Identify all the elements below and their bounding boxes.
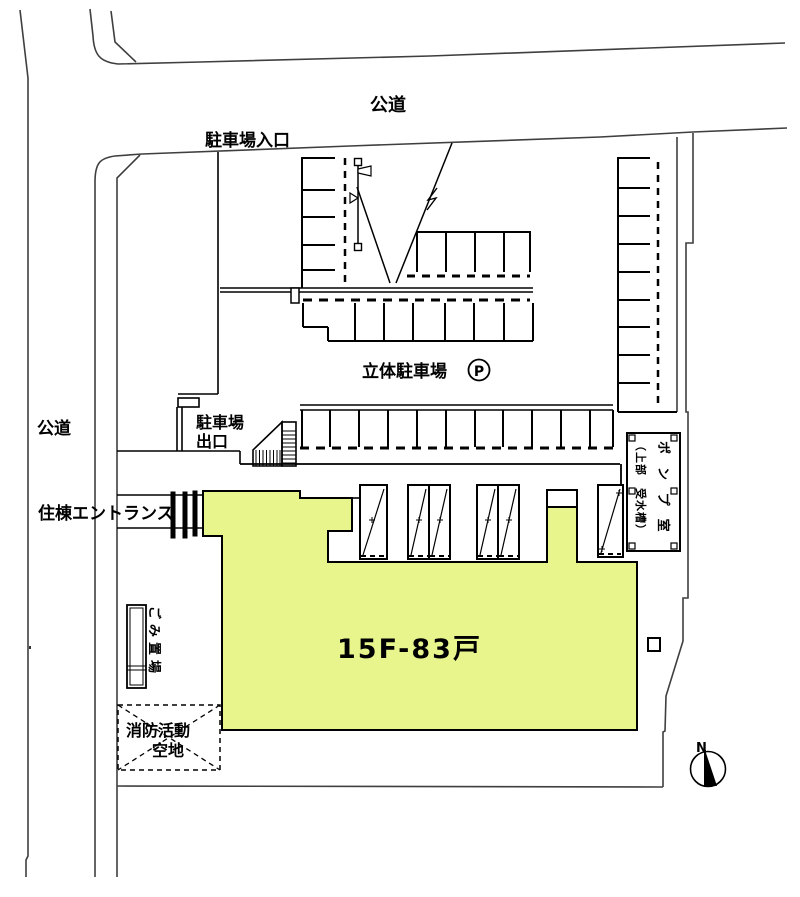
garbage-label: ごみ置場 [146,606,162,678]
site-plan-page: ポンプ室 （上部 受水槽） ごみ置場 消防活動 空地 N 公道 駐車場入口 立体… [0,0,800,897]
residence-entrance-label: 住棟エントランス [38,503,174,524]
road-label-top: 公道 [370,94,406,116]
compass-north-label: N [696,741,707,756]
building-roof-cap [547,490,577,507]
site-plan-drawing: ポンプ室 （上部 受水槽） ごみ置場 消防活動 空地 N 公道 駐車場入口 立体… [0,0,800,897]
pump-room: ポンプ室 （上部 受水槽） [627,433,680,551]
ramp-post-top [355,159,362,166]
stray-dot [29,646,31,649]
multistory-parking-label: 立体駐車場 [362,361,447,382]
pump-room-sub-label: （上部 受水槽） [634,440,648,536]
pump-room-label: ポンプ室 [655,441,671,545]
fire-activity-label-line2: 空地 [152,741,184,760]
fire-activity-label-line1: 消防活動 [126,721,190,740]
entrance-gate-post-2 [183,492,187,538]
parking-exit-label-line1: 駐車場 [196,413,244,432]
road-label-left: 公道 [37,418,71,439]
parking-exit-label-line2: 出口 [196,432,228,451]
small-utility-square [648,638,660,651]
ramp-post-bottom [355,244,362,251]
site-south-boundary [117,786,663,787]
parking-entrance-label: 駐車場入口 [205,130,290,151]
building-main-label: 15F-83戸 [337,634,482,665]
entrance-gate-post-3 [193,491,197,536]
parking-p-symbol: P [474,364,484,380]
center-bar-post [291,288,299,303]
